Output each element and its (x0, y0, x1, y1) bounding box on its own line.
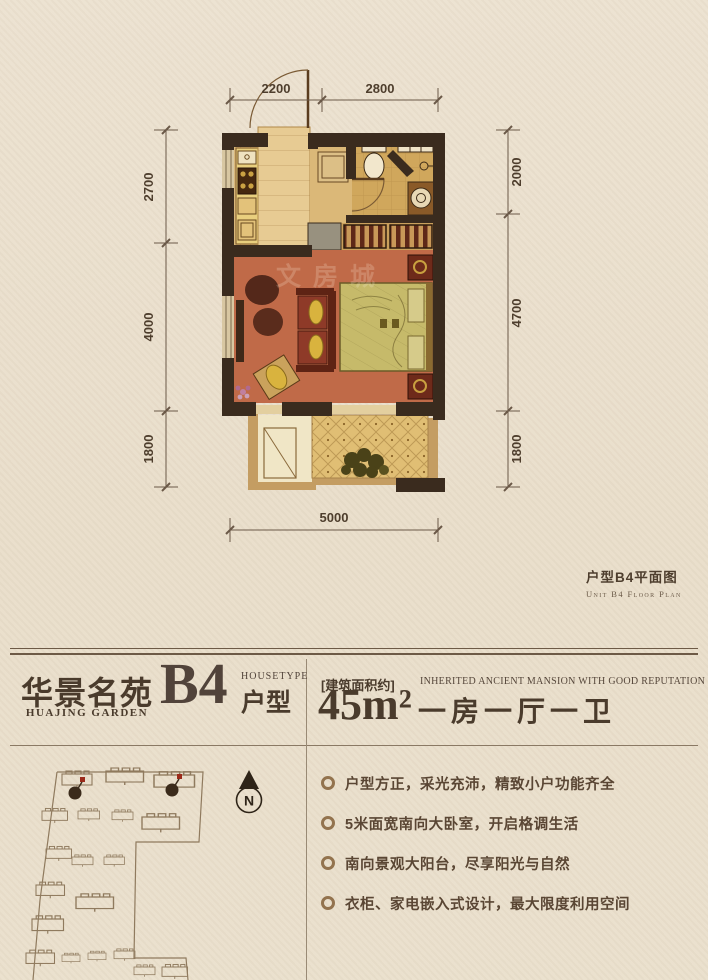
unit-code: B4 (160, 655, 228, 713)
north-label: N (244, 793, 254, 809)
bed (340, 283, 432, 371)
housetype-label-en: HOUSETYPE (241, 671, 308, 682)
nightstand-top (408, 255, 433, 280)
feature-list: 户型方正，采光充沛，精致小户功能齐全 5米面宽南向大卧室，开启格调生活 南向景观… (321, 771, 693, 931)
feature-text: 南向景观大阳台，尽享阳光与自然 (345, 853, 570, 874)
plan-caption-en: Unit B4 Floor Plan (586, 589, 682, 599)
dim-right-2: 4700 (509, 299, 524, 328)
bullet-ring-icon (321, 776, 335, 790)
feature-text: 5米面宽南向大卧室，开启格调生活 (345, 813, 579, 834)
north-compass-icon: N (230, 768, 270, 818)
bullet-ring-icon (321, 816, 335, 830)
watermark-text: 文房城 (276, 262, 387, 291)
bullet-ring-icon (321, 856, 335, 870)
brand-name-en: HUAJING GARDEN (14, 707, 160, 719)
location-marker (69, 777, 86, 800)
dim-left-2: 4000 (141, 313, 156, 342)
flyer-page: 文房城 (0, 0, 708, 980)
bullet-ring-icon (321, 896, 335, 910)
dim-top-2: 2800 (366, 81, 395, 96)
dim-left-3: 1800 (141, 435, 156, 464)
entry-door (250, 70, 308, 128)
plan-caption-cn: 户型B4平面图 (586, 566, 682, 586)
feature-text: 衣柜、家电嵌入式设计，最大限度利用空间 (345, 893, 630, 914)
divider-double-rule (10, 648, 698, 655)
feature-item: 5米面宽南向大卧室，开启格调生活 (321, 811, 693, 835)
dim-right-3: 1800 (509, 435, 524, 464)
builtin-wardrobe (308, 223, 433, 250)
feature-item: 南向景观大阳台，尽享阳光与自然 (321, 851, 693, 875)
room-hall (310, 147, 352, 223)
room-living-bedroom: 文房城 (234, 250, 433, 403)
dim-bottom-1: 5000 (320, 510, 349, 525)
feature-item: 衣柜、家电嵌入式设计，最大限度利用空间 (321, 891, 693, 915)
dim-right-1: 2000 (509, 158, 524, 187)
divider-vertical (306, 659, 307, 980)
location-marker (166, 774, 183, 797)
housetype-label: 户型 (241, 683, 291, 719)
layout-summary: 一房一厅一卫 (418, 690, 616, 730)
plan-caption: 户型B4平面图 Unit B4 Floor Plan (586, 566, 682, 599)
room-bathroom (352, 140, 434, 223)
feature-item: 户型方正，采光充沛，精致小户功能齐全 (321, 771, 693, 795)
dim-left-1: 2700 (141, 173, 156, 202)
area-value: 45m² (318, 683, 412, 727)
divider-single-rule (10, 745, 698, 746)
slogan-en: INHERITED ANCIENT MANSION WITH GOOD REPU… (420, 676, 705, 687)
dim-top-1: 2200 (262, 81, 291, 96)
floor-plan-drawing: 文房城 (0, 0, 708, 655)
feature-text: 户型方正，采光充沛，精致小户功能齐全 (345, 773, 615, 794)
nightstand-bottom (408, 374, 433, 399)
